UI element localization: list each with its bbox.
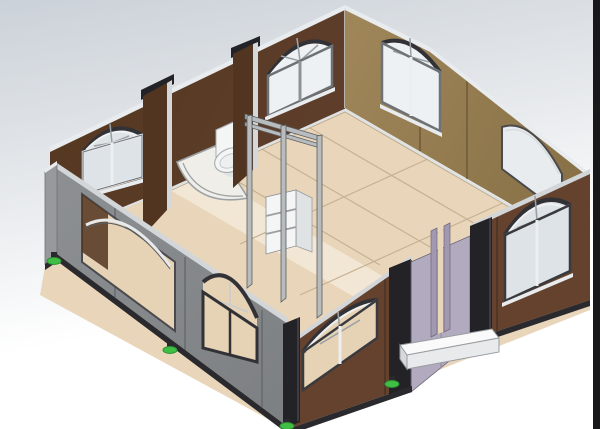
door-u-channel-left xyxy=(431,228,437,337)
partition-edge xyxy=(167,80,172,210)
partition-edge xyxy=(253,42,258,170)
bathroom-partition-right xyxy=(231,36,260,188)
container-house-render: 3D CAD isometric render of an expandable… xyxy=(0,0,600,429)
front-corner-post xyxy=(283,317,300,429)
door-u-channel-right xyxy=(444,223,450,332)
shelf-unit xyxy=(266,190,312,254)
door-u-channel-gap xyxy=(438,227,443,334)
right-edge-strip xyxy=(593,0,600,429)
stud xyxy=(281,125,286,302)
cad-screenshot: 3D CAD isometric render of an expandable… xyxy=(0,0,600,429)
door-post-right xyxy=(470,217,492,343)
stud xyxy=(317,135,322,318)
left-end-wall xyxy=(45,161,57,264)
stud xyxy=(247,115,252,288)
shelf-side xyxy=(296,190,312,252)
